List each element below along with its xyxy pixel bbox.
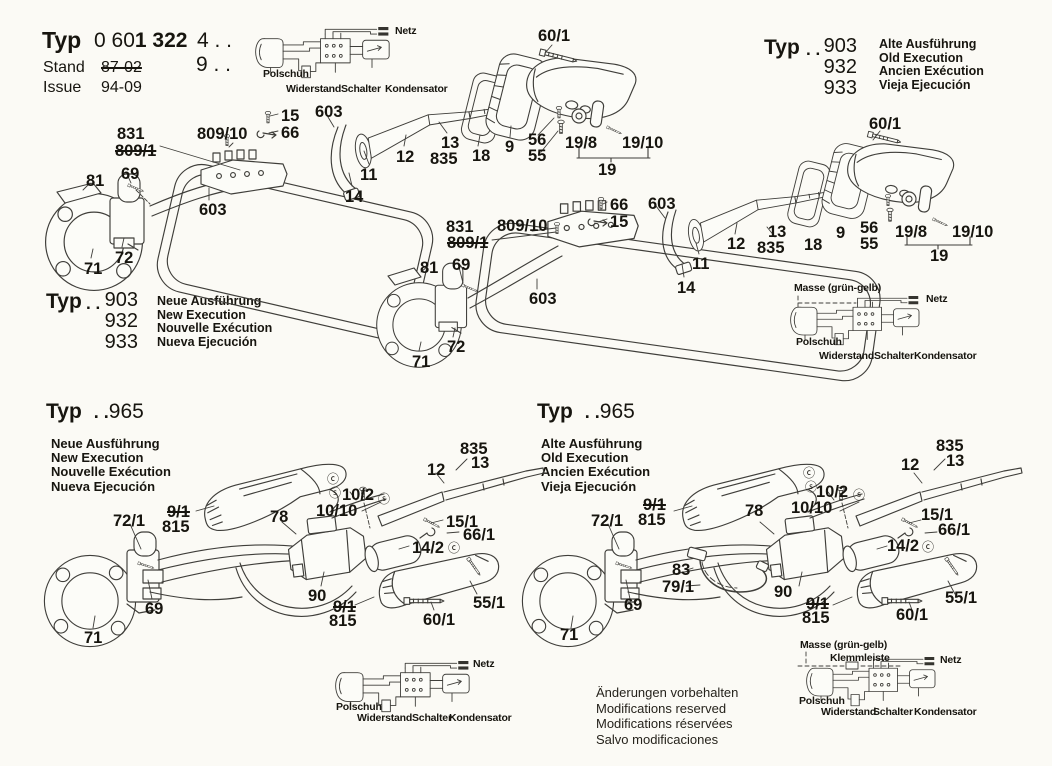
diagram-art [0,0,1052,766]
parts-diagram-page: Typ 0 601 322 4 . . 9 . . Stand 87-02 Is… [0,0,1052,766]
wiring-schematic-bottom-left [336,661,470,712]
exploded-view-903-new [46,45,650,345]
wiring-schematic-top [256,27,390,78]
wiring-schematic-bottom-right [807,657,935,706]
exploded-view-965-old [522,459,1022,647]
exploded-view-903-old [377,131,972,384]
exploded-view-965-new [44,459,544,647]
